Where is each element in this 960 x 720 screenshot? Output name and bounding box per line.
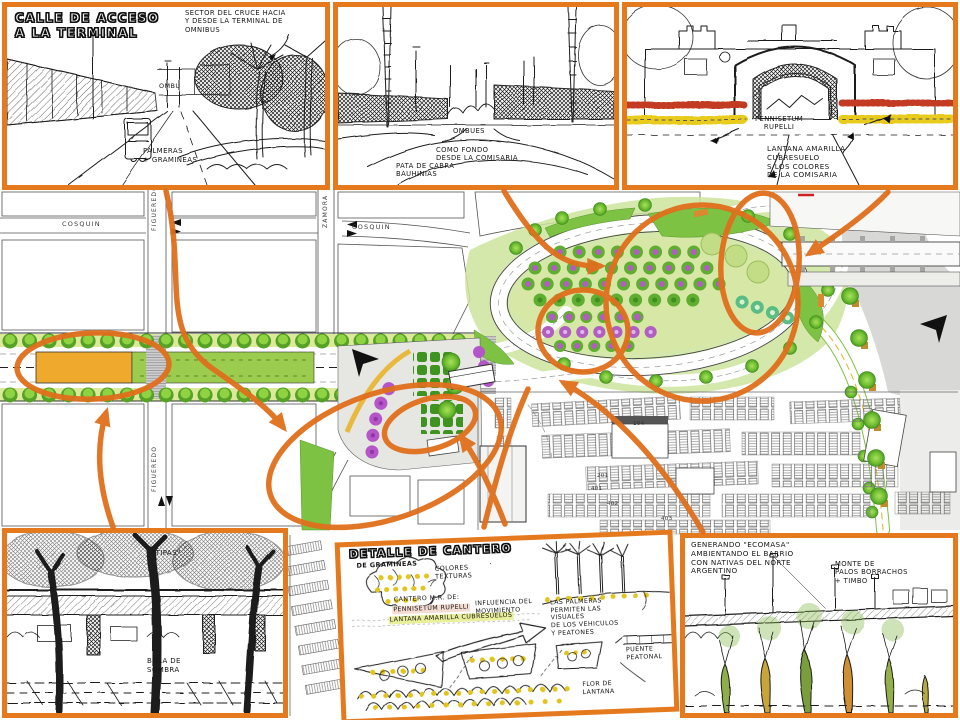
panel-tipas: "TIPAS" BOLA DE SOMBRA: [2, 528, 288, 718]
panel-comisaria: PENNISETUM RUPELLI LANTANA AMARILLA CUBR…: [622, 2, 958, 190]
ombues-label: OMBUES: [453, 127, 485, 135]
platform-number: 201: [597, 473, 608, 479]
ombu-label: OMBU: [159, 83, 181, 91]
street-label-figueredo-north: FIGUEREDO: [151, 185, 158, 231]
puente-peatonal-label: PUENTE PEATONAL: [626, 645, 663, 662]
panel-cantero-detail: DETALLE DE CANTERO DE GRAMINEAS COLORES …: [335, 530, 680, 720]
panel-title: CALLE DE ACCESO A LA TERMINAL: [15, 11, 160, 41]
tipas-label: "TIPAS": [152, 549, 181, 558]
platform-number: 401: [591, 486, 602, 492]
lantana-label: LANTANA AMARILLA CUBRESUELO S/LOS COLORE…: [767, 145, 845, 180]
panel-ecomasa: GENERANDO "ECOMASA" AMBIENTANDO EL BARRI…: [680, 533, 958, 718]
panel-access-street: CALLE DE ACCESO A LA TERMINAL SECTOR DEL…: [2, 2, 330, 190]
panel-ombues: OMBUES COMO FONDO DESDE LA COMISARIA PAT…: [333, 2, 619, 190]
street-label-cosquin-west: COSQUIN: [62, 220, 101, 228]
palmeras-visuales-label: LAS PALMERAS PERMITEN LAS VISUALES DE LO…: [550, 597, 619, 638]
movimiento-label: INFLUENCIA DEL MOVIMIENTO: [475, 598, 533, 616]
pata-de-cabra-label: PATA DE CABRA BAUHINIAS: [396, 162, 454, 179]
platform-number: 403: [661, 516, 672, 522]
street-label-cosquin-east: COSQUIN: [352, 223, 391, 231]
street-label-figueredo-south: FIGUEREDO: [151, 446, 158, 492]
tipas-sketch: [7, 533, 283, 713]
street-label-zamora: ZAMORA: [322, 195, 329, 228]
sector-note: SECTOR DEL CRUCE HACIA Y DESDE LA TERMIN…: [185, 9, 286, 34]
platform-number: 104: [633, 421, 644, 427]
monte-label: MONTE DE PALOS BORRACHOS + TIMBO: [835, 560, 908, 585]
palmeras-label: PALMERAS + GRAMINEAS: [143, 147, 197, 164]
design-board: COSQUIN COSQUIN FIGUEREDO FIGUEREDO ZAMO…: [0, 0, 960, 720]
fondo-label: COMO FONDO DESDE LA COMISARIA: [436, 146, 518, 163]
bola-sombra-label: BOLA DE SOMBRA: [147, 657, 181, 674]
flor-lantana-label: FLOR DE LANTANA: [582, 680, 615, 697]
colores-label: COLORES TEXTURAS: [435, 564, 473, 581]
platform-number: 402: [607, 501, 618, 507]
pennisetum-label: PENNISETUM RUPELLI: [755, 115, 803, 132]
ecomasa-note: GENERANDO "ECOMASA" AMBIENTANDO EL BARRI…: [691, 541, 794, 576]
